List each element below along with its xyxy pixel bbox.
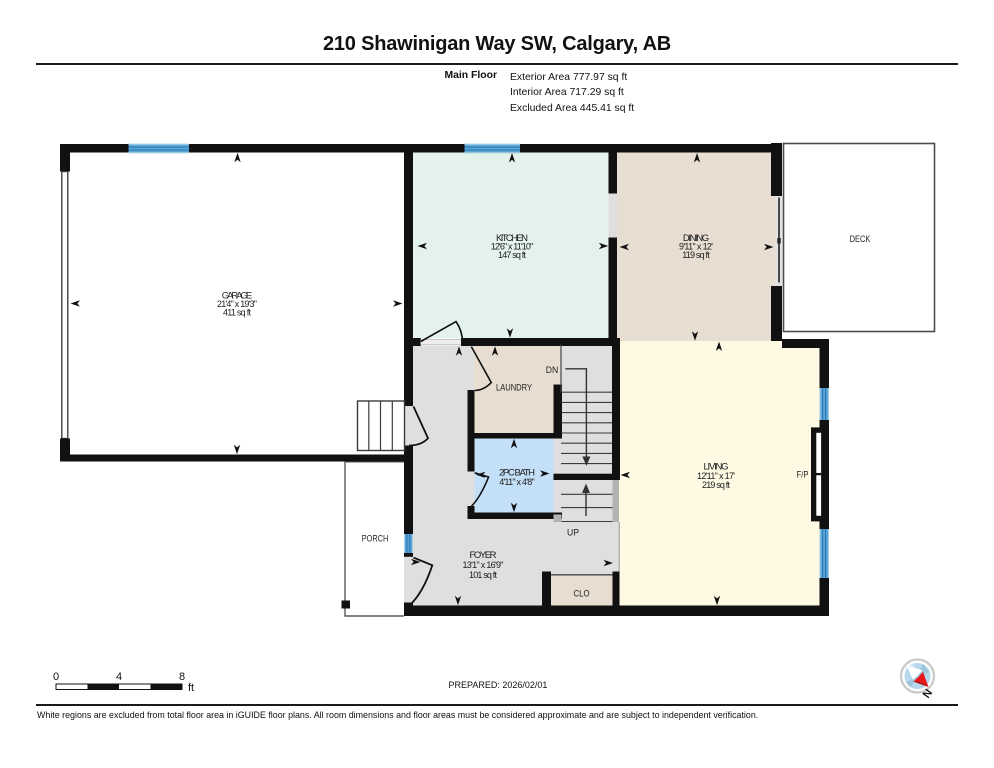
svg-text:147 sq ft: 147 sq ft bbox=[498, 250, 526, 260]
svg-text:LAUNDRY: LAUNDRY bbox=[496, 383, 533, 394]
svg-text:F/P: F/P bbox=[797, 470, 809, 480]
svg-text:UP: UP bbox=[567, 528, 579, 539]
svg-text:CLO: CLO bbox=[574, 589, 590, 600]
svg-text:219 sq ft: 219 sq ft bbox=[702, 480, 730, 490]
svg-text:N: N bbox=[921, 687, 935, 700]
svg-text:4'11" x 4'8": 4'11" x 4'8" bbox=[499, 477, 535, 487]
svg-text:411 sq ft: 411 sq ft bbox=[223, 307, 251, 317]
svg-text:DECK: DECK bbox=[850, 234, 871, 245]
svg-text:PORCH: PORCH bbox=[362, 534, 389, 545]
svg-text:13'1" x 16'9": 13'1" x 16'9" bbox=[463, 560, 504, 570]
svg-text:119 sq ft: 119 sq ft bbox=[682, 250, 710, 260]
svg-text:DN: DN bbox=[546, 365, 559, 376]
svg-text:101 sq ft: 101 sq ft bbox=[469, 570, 497, 580]
